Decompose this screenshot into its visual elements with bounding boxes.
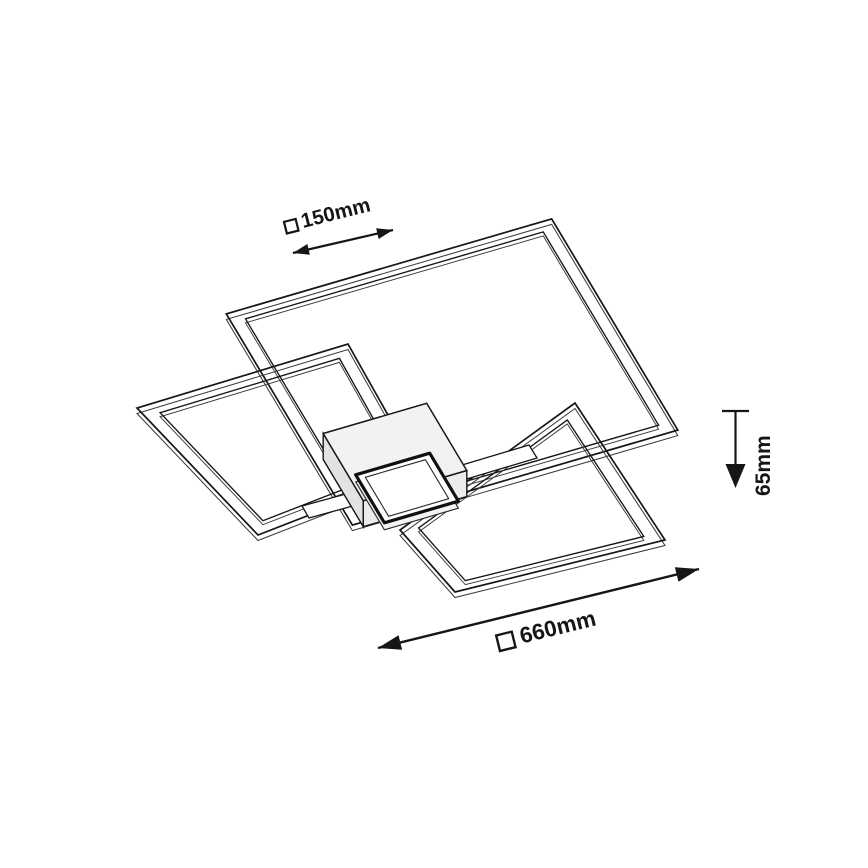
dimension-label-150mm: 150mm xyxy=(299,193,373,232)
dimension-label-65mm: 65mm xyxy=(752,435,775,496)
dimension-arrow-65mm xyxy=(722,411,749,488)
diagram-page: 150mm 65mm 660mm xyxy=(0,0,868,868)
square-symbol-icon xyxy=(284,219,299,234)
dimension-label-150mm-group: 150mm xyxy=(282,193,373,237)
lamp-dimension-diagram: 150mm 65mm 660mm xyxy=(0,0,868,868)
square-symbol-icon xyxy=(496,632,515,651)
dimension-label-660mm-group: 660mm xyxy=(495,606,599,654)
dimension-arrow-150mm xyxy=(293,228,393,255)
dimension-label-660mm: 660mm xyxy=(517,606,598,649)
